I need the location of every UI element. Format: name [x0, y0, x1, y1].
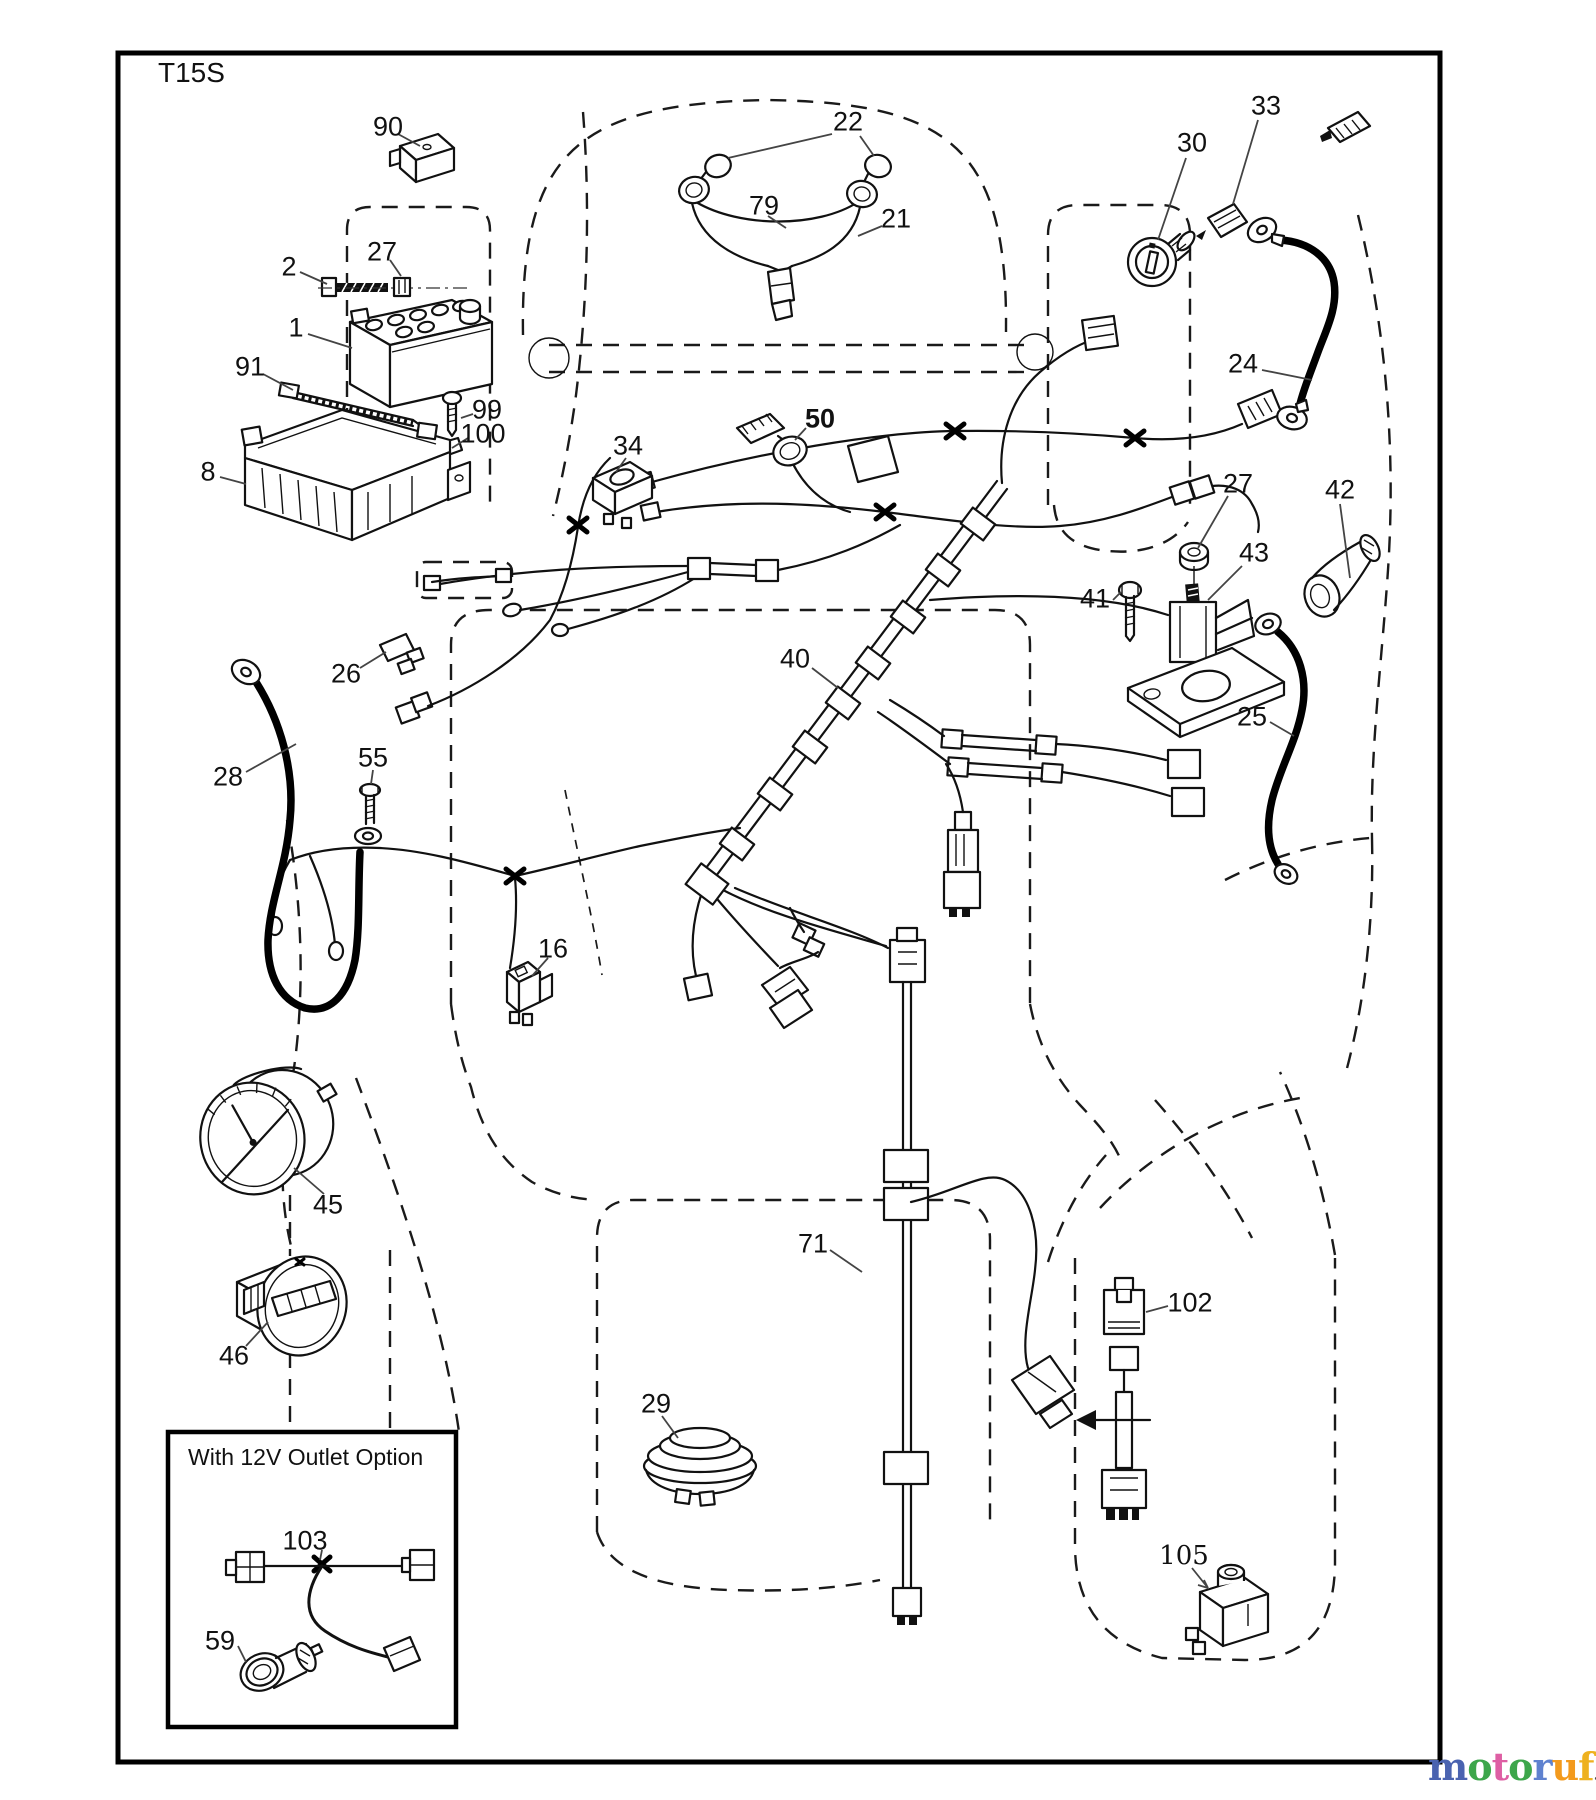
part-callout-91: 91	[235, 352, 265, 383]
part-26-fuse	[380, 634, 424, 674]
part-callout-46: 46	[219, 1341, 249, 1372]
part-callout-40: 40	[780, 644, 810, 675]
option-box-title: With 12V Outlet Option	[188, 1444, 423, 1471]
part-callout-28: 28	[213, 762, 243, 793]
part-callout-42: 42	[1325, 475, 1355, 506]
part-callout-2: 2	[281, 252, 296, 283]
part-102-fuse-holder	[1076, 1278, 1150, 1520]
diagram-code: T15S	[158, 57, 225, 89]
part-callout-55: 55	[358, 743, 388, 774]
part-callout-43: 43	[1239, 538, 1269, 569]
part-callout-102: 102	[1167, 1288, 1212, 1319]
part-callout-33: 33	[1251, 91, 1281, 122]
part-25-ground-cable	[1252, 610, 1304, 888]
part-callout-29: 29	[641, 1389, 671, 1420]
part-callout-71: 71	[798, 1229, 828, 1260]
part-29-seat-switch	[644, 1428, 756, 1506]
part-45-ammeter	[190, 1059, 351, 1203]
part-callout-105: 105	[1159, 1541, 1209, 1571]
part-22-bulbs	[676, 151, 893, 210]
part-99-bolt	[443, 392, 461, 436]
part-105-solenoid-valve	[1186, 1565, 1268, 1654]
part-callout-27: 27	[1223, 469, 1253, 500]
top-right-spade-connector	[1320, 112, 1370, 142]
part-callout-79: 79	[749, 191, 779, 222]
part-30-ignition-switch	[1128, 229, 1198, 286]
part-callout-59: 59	[205, 1626, 235, 1657]
part-callout-16: 16	[538, 934, 568, 965]
part-callout-24: 24	[1228, 349, 1258, 380]
part-callout-45: 45	[313, 1190, 343, 1221]
diagram-page: T15S With 12V Outlet Option 902271919910…	[0, 0, 1596, 1800]
part-callout-1: 1	[288, 313, 303, 344]
part-50-sensor	[737, 414, 811, 470]
part-callout-50: 50	[805, 404, 835, 435]
part-27-battery-nut	[394, 278, 410, 296]
part-callout-27: 27	[367, 237, 397, 268]
part-callout-8: 8	[200, 457, 215, 488]
part-59-power-outlet	[234, 1640, 322, 1698]
part-callout-30: 30	[1177, 128, 1207, 159]
part-16-interlock-switch	[507, 962, 552, 1025]
part-55-screw	[355, 784, 381, 844]
part-callout-103: 103	[282, 1526, 327, 1557]
part-1-battery	[350, 299, 492, 407]
part-41-bolt	[1119, 582, 1141, 641]
motoruf-logo: motoruf.de	[1428, 1748, 1596, 1786]
part-33-module	[1196, 204, 1247, 240]
logo-word: motoruf	[1428, 1744, 1594, 1789]
part-callout-25: 25	[1237, 702, 1267, 733]
wiring-diagram-canvas	[0, 0, 1596, 1800]
part-callout-41: 41	[1080, 584, 1110, 615]
part-callout-90: 90	[373, 112, 403, 143]
part-callout-34: 34	[613, 431, 643, 462]
part-8-battery-box	[242, 410, 470, 540]
label-tag	[848, 436, 898, 482]
part-callout-100: 100	[460, 419, 505, 450]
part-callout-22: 22	[833, 107, 863, 138]
part-46-hour-meter	[237, 1245, 359, 1367]
part-callout-26: 26	[331, 659, 361, 690]
part-callout-21: 21	[881, 204, 911, 235]
part-42-terminal-boot	[1299, 532, 1384, 622]
